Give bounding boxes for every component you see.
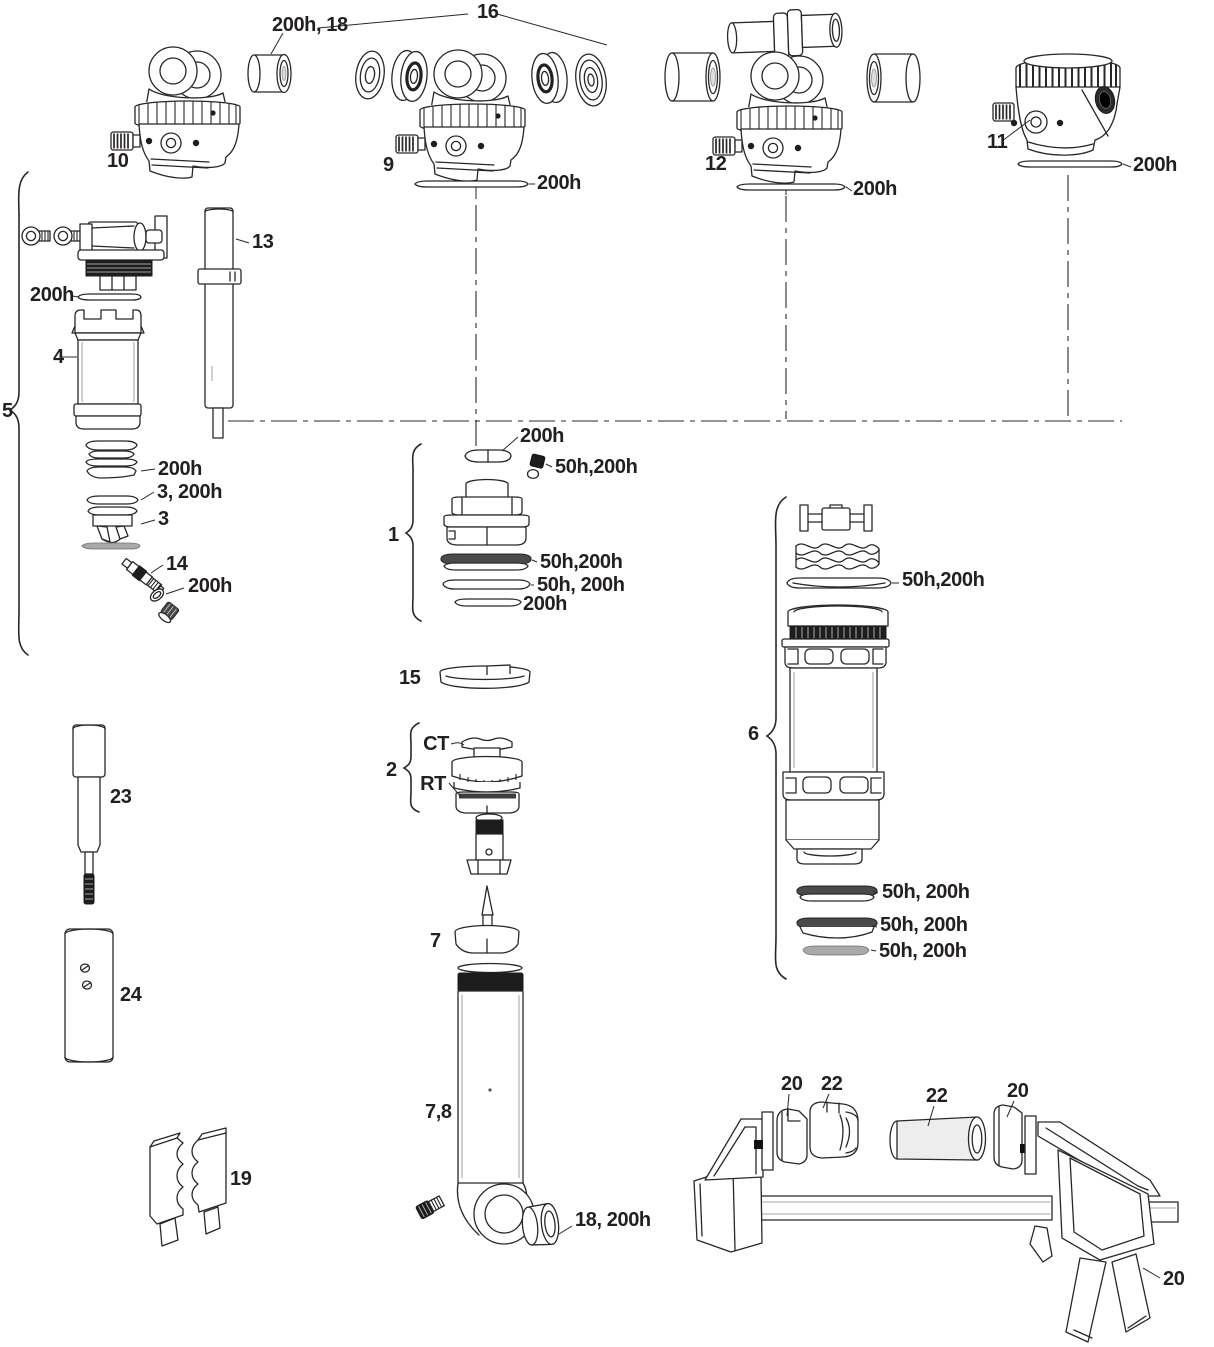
label-50h-200h-6a: 50h, 200h <box>882 881 970 903</box>
label-200h-glide: 200h <box>520 425 564 447</box>
seal-stack-left <box>86 441 155 478</box>
label-200h-18: 200h, 18 <box>272 14 348 36</box>
leader-bushing-18 <box>271 33 283 54</box>
valve-fitting <box>800 505 872 531</box>
wiper-seal-11 <box>1018 161 1122 167</box>
clamp-tool-20-22 <box>694 1094 1178 1342</box>
label-18-200h: 18, 200h <box>575 1209 651 1231</box>
label-12: 12 <box>705 153 727 175</box>
piston-group-2 <box>404 723 522 813</box>
label-22-a: 22 <box>821 1073 843 1095</box>
centerlines <box>228 168 1122 448</box>
adjuster-cylinder <box>467 814 511 874</box>
exploded-parts-diagram: 200h, 18 16 10 9 200h 12 200h 11 200h 13… <box>0 0 1214 1347</box>
shock-head-assembly-11 <box>993 54 1120 155</box>
label-20-c: 20 <box>1163 1268 1185 1290</box>
seal-dark <box>441 554 537 570</box>
label-15: 15 <box>399 667 421 689</box>
label-13: 13 <box>252 231 274 253</box>
reservoir-can-4 <box>62 310 144 429</box>
adapter-20-right <box>994 1105 1036 1174</box>
wiper-seal-12 <box>737 184 845 190</box>
piston-assembly <box>444 480 529 546</box>
label-11: 11 <box>987 131 1008 153</box>
seal-thin <box>455 599 521 606</box>
damper-shaft-13 <box>198 208 249 438</box>
adapter-20-left <box>777 1109 807 1164</box>
label-3: 3 <box>158 508 169 530</box>
fixed-jaw-left <box>694 1112 773 1252</box>
eyelet-bushing-18-top <box>248 55 291 93</box>
label-2: 2 <box>386 759 397 781</box>
eyelet-bushing-18-bottom <box>520 1203 560 1248</box>
label-16: 16 <box>477 1 499 23</box>
mounting-pin <box>727 8 843 61</box>
label-7: 7 <box>430 930 441 952</box>
tool-rod-23 <box>73 725 105 904</box>
label-3-200h: 3, 200h <box>157 481 222 503</box>
label-200h-valve: 200h <box>30 284 74 306</box>
label-200h-14: 200h <box>188 575 232 597</box>
label-200h-9: 200h <box>537 172 581 194</box>
label-5: 5 <box>2 400 13 422</box>
spacer-left <box>665 53 720 101</box>
label-50h200h-oring6: 50h,200h <box>902 569 984 591</box>
shock-head-assembly-9 <box>318 14 609 187</box>
rt-ring <box>456 792 519 813</box>
label-200h-11: 200h <box>1133 154 1177 176</box>
screw <box>22 227 50 245</box>
wiper-seal-9 <box>415 181 528 187</box>
label-23: 23 <box>110 786 132 808</box>
label-19: 19 <box>230 1168 252 1190</box>
tool-sleeve-24 <box>65 929 113 1062</box>
set-screw <box>528 454 553 479</box>
bracket-group-2 <box>404 723 419 812</box>
seal-dark <box>797 886 878 901</box>
seal-head-3 <box>82 492 155 549</box>
label-ct: CT <box>423 733 449 755</box>
label-rt: RT <box>420 773 446 795</box>
clamp-head-right <box>1030 1122 1160 1342</box>
label-1: 1 <box>388 524 399 546</box>
label-9: 9 <box>383 154 394 176</box>
label-6: 6 <box>748 723 759 745</box>
air-can-group-6 <box>767 497 899 979</box>
vise-blocks-19 <box>150 1128 226 1246</box>
label-14: 14 <box>166 553 189 575</box>
bearing-washer <box>573 52 610 108</box>
label-4: 4 <box>53 346 65 368</box>
callout-labels: 200h, 18 16 10 9 200h 12 200h 11 200h 13… <box>2 1 1185 1290</box>
cylinder-22 <box>890 1117 986 1160</box>
label-10: 10 <box>107 150 129 172</box>
clamp-bar <box>752 1196 1052 1220</box>
label-50h200h-seal: 50h,200h <box>540 551 622 573</box>
label-20-b: 20 <box>1007 1080 1029 1102</box>
seal-ring <box>443 580 530 589</box>
label-200h-12: 200h <box>853 178 897 200</box>
piston <box>452 757 522 793</box>
shock-head-assembly-10 <box>111 47 240 178</box>
label-7-8: 7,8 <box>425 1101 452 1123</box>
bearing <box>389 49 429 102</box>
adapter-22-left <box>810 1102 858 1158</box>
seal-cup <box>797 918 877 938</box>
label-50h-200h-6c: 50h, 200h <box>879 940 967 962</box>
retaining-ring-15 <box>440 665 530 688</box>
label-50h200h-screw: 50h,200h <box>555 456 637 478</box>
label-20-a: 20 <box>781 1073 803 1095</box>
wiper-seal <box>78 294 141 300</box>
bracket-group-1 <box>406 444 421 621</box>
label-22-b: 22 <box>926 1085 948 1107</box>
label-50h-200h-6b: 50h, 200h <box>880 914 968 936</box>
bracket-group-6 <box>767 497 786 979</box>
spacer-right <box>867 54 920 102</box>
label-24: 24 <box>120 984 143 1006</box>
label-200h-stack: 200h <box>158 458 202 480</box>
screw <box>54 227 82 245</box>
diagram-canvas: 200h, 18 16 10 9 200h 12 200h 11 200h 13… <box>0 0 1214 1347</box>
air-can-body <box>782 605 889 864</box>
bearing-washer <box>353 49 387 100</box>
wave-spring <box>796 544 879 569</box>
shaft-guide-7 <box>455 886 519 953</box>
air-valve-screw <box>415 1195 445 1220</box>
bearing <box>529 51 569 104</box>
seal-light <box>803 946 869 955</box>
label-200h-ring: 200h <box>523 593 567 615</box>
shock-head-assembly-12 <box>665 8 920 191</box>
